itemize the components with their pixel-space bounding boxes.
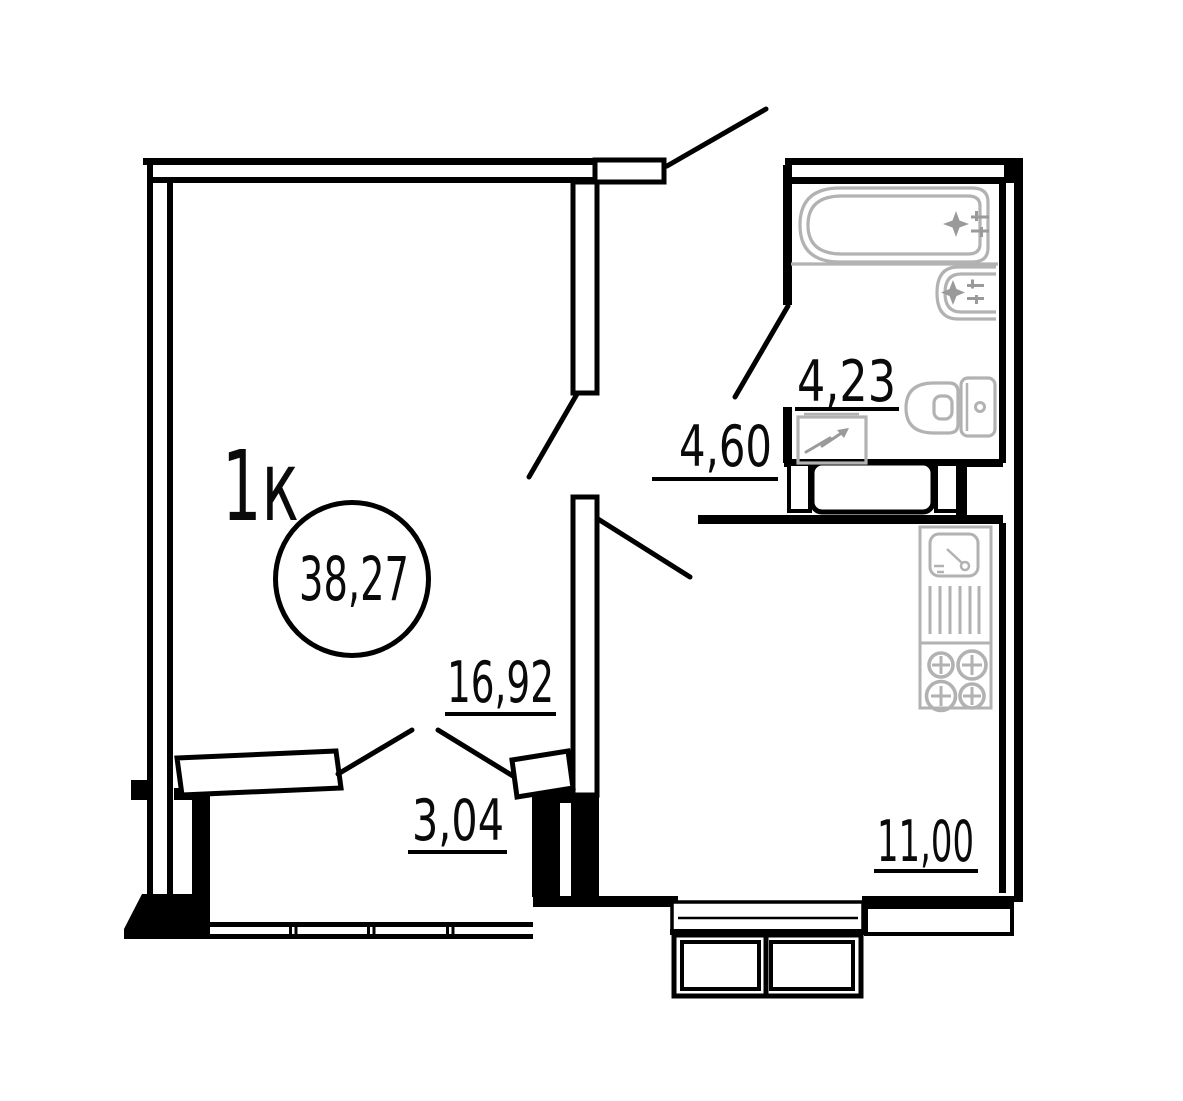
balcony-swing-left (338, 730, 412, 774)
bathroom-door-block (789, 463, 958, 512)
balcony-door-pane-right (771, 942, 853, 989)
window-inner-line (210, 934, 533, 939)
right-wall-inner-lower (999, 523, 1006, 893)
right-wall-inner-upper (999, 177, 1006, 463)
bottom-right-sill-block (866, 907, 1012, 934)
bathroom-left-wall-lower (783, 407, 792, 463)
corridor-area-label: 4,60 (679, 414, 772, 480)
hallway-area-label: 3,04 (412, 788, 504, 854)
kitchen-sink-icon (930, 534, 978, 576)
bathroom-fixtures (791, 188, 998, 463)
door-jamb-left (789, 464, 810, 511)
top-wall-lintel (595, 160, 664, 182)
balcony-sash-left (177, 751, 341, 795)
loggia-right-wall (532, 791, 560, 897)
bathroom-door-leaf (735, 306, 788, 397)
middle-wall-upper (573, 497, 597, 795)
top-wall-outer (143, 158, 595, 165)
right-wall-outer (1014, 158, 1023, 902)
balcony-sash-right (512, 751, 573, 797)
bathroom-left-wall-upper (783, 165, 792, 305)
living-room-area-label: 16,92 (447, 650, 554, 716)
balcony-block (177, 730, 573, 797)
bathroom-sink-icon (937, 267, 996, 319)
bathroom-area-label: 4,23 (797, 349, 896, 415)
toilet-icon (906, 378, 995, 436)
living-room-door-leaf (529, 394, 577, 477)
door-panel (812, 463, 933, 512)
floor-plan: 1к 38,27 16,92 3,04 4,60 4,23 11,00 (0, 0, 1183, 1101)
door-jamb-right (936, 464, 958, 511)
window (210, 922, 533, 939)
bath-top-wall-outer (785, 158, 1023, 165)
bathtub-icon (800, 188, 989, 262)
bottom-left-corner-block (124, 894, 210, 939)
left-wall-tick (131, 780, 147, 800)
kitchen-door-leaf (598, 519, 690, 577)
balcony-door-pane-left (682, 942, 759, 989)
bath-top-wall-inner (790, 177, 1002, 184)
middle-wall-lower (571, 793, 599, 903)
top-wall-inner (148, 177, 595, 183)
entrance-door-leaf (667, 109, 766, 166)
balcony-swing-right (438, 730, 513, 776)
window-outer-line (210, 922, 533, 927)
left-wall-outer (147, 158, 153, 898)
kitchen-area-label: 11,00 (877, 809, 974, 875)
bottom-wall-left-of-balcony (533, 896, 678, 907)
kitchen-fixtures (920, 527, 991, 711)
washing-machine-icon (798, 414, 866, 463)
drainer-icon (930, 586, 979, 634)
loggia-left-wall (192, 788, 210, 896)
bathtub-faucet-icon (943, 211, 989, 237)
balcony-door-assembly (670, 902, 865, 996)
total-area-label: 38,27 (299, 544, 409, 615)
left-wall-inner (167, 177, 173, 895)
living-corridor-stub-wall (573, 182, 597, 393)
apartment-type-label: 1к (222, 430, 299, 543)
stove-icon (927, 651, 987, 711)
